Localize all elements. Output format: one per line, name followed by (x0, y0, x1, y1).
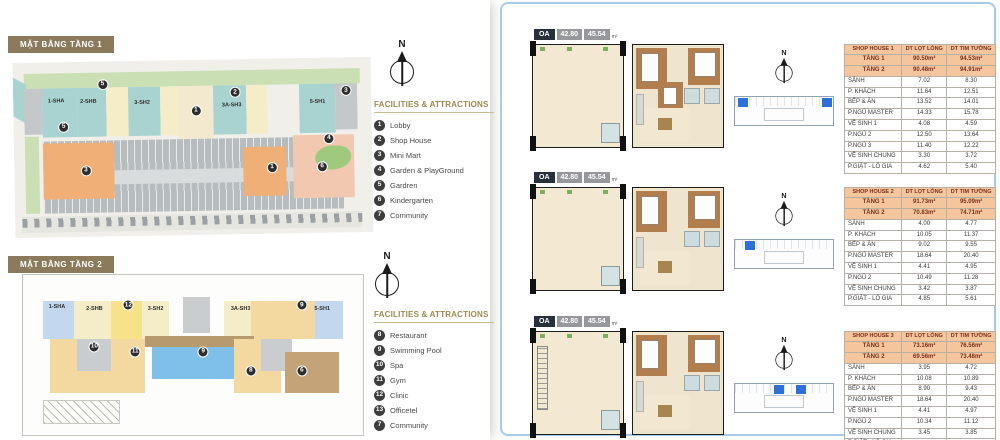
table-cell: 95.09m² (947, 198, 996, 209)
legend-list: 1Lobby2Shop House3Mini Mart4Garden & Pla… (374, 120, 494, 221)
legend-item-label: Community (390, 211, 428, 220)
table-header-cell: DT LỌT LÒNG (902, 332, 947, 342)
table-cell: 76.56m² (947, 342, 996, 353)
table-cell: 20.40 (947, 396, 996, 407)
table-cell: P.NGỦ MASTER (845, 396, 902, 407)
table-row: VỆ SINH CHUNG3.453.85 (845, 428, 996, 439)
area-value-1: 42.80 (557, 29, 583, 40)
table-cell: 18.64 (902, 252, 947, 263)
north-compass: N (370, 252, 404, 296)
bed (694, 195, 716, 219)
area-badge: OA 42.80 45.54 m² (534, 316, 990, 327)
legend-item: 2Shop House (374, 135, 494, 146)
area-table: SHOP HOUSE 3 DT LỌT LÒNG DT TIM TƯỜNG TẦ… (844, 331, 996, 440)
table-cell: P. KHÁCH (845, 374, 902, 385)
plan-marker: 9 (296, 300, 307, 311)
table-row: TẦNG 270.83m²74.71m² (845, 208, 996, 219)
location-keyplan (734, 96, 834, 126)
table-cell: P.NGỦ 2 (845, 273, 902, 284)
keyplan-highlight (738, 98, 748, 107)
table-cell: 94.91m² (947, 65, 996, 76)
floorplan-brochure: MẶT BẰNG TẦNG 1 5231531461-SHA2-SHB3-SH2… (0, 0, 1000, 440)
north-compass: N (772, 337, 796, 369)
furnished-floor-plan (632, 187, 724, 291)
table-header-cell: DT TIM TƯỜNG (947, 332, 996, 342)
legend-title: FACILITIES & ATTRACTIONS (374, 100, 494, 113)
table-cell: 3.45 (902, 428, 947, 439)
legend-item-label: Shop House (390, 136, 431, 145)
table-row: P. KHÁCH10.0511.37 (845, 230, 996, 241)
unit-code-badge: OA (534, 316, 555, 327)
table-cell: P.NGỦ 3 (845, 141, 902, 152)
table-cell: 8.90 (902, 385, 947, 396)
table-cell: 94.53m² (947, 55, 996, 66)
legend-item-number: 10 (374, 360, 385, 371)
bathroom (601, 410, 621, 430)
table-header-cell: SHOP HOUSE 3 (845, 332, 902, 342)
shophouse-block (77, 88, 106, 137)
wall-segment (530, 184, 536, 199)
legend-item-number: 7 (374, 210, 385, 221)
bathroom (704, 375, 720, 391)
table-cell: BẾP & ĂN (845, 241, 902, 252)
legend-item: 5Gardren (374, 180, 494, 191)
bathroom (601, 123, 621, 143)
legend-title: FACILITIES & ATTRACTIONS (374, 310, 494, 323)
area-table: SHOP HOUSE 2 DT LỌT LÒNG DT TIM TƯỜNG TẦ… (844, 187, 996, 306)
area-value-2: 45.54 (584, 316, 610, 327)
kitchen (636, 94, 644, 125)
table-row: P.NGỦ MASTER14.3315.78 (845, 109, 996, 120)
plant (567, 47, 572, 51)
table-cell: 10.34 (902, 417, 947, 428)
legend-item-label: Mini Mart (390, 151, 421, 160)
wall-segment (620, 423, 626, 438)
legend-item-label: Garden & PlayGround (390, 166, 464, 175)
table-cell: 73.48m² (947, 352, 996, 363)
wall-segment (620, 136, 626, 151)
kindergarten-block (285, 352, 339, 394)
table-cell: TẦNG 2 (845, 208, 902, 219)
furnished-floor-plan (632, 331, 724, 435)
table-cell: 10.05 (902, 230, 947, 241)
table-header-cell: SHOP HOUSE 2 (845, 188, 902, 198)
table-row: P. KHÁCH10.0810.89 (845, 374, 996, 385)
legend-item-number: 1 (374, 120, 385, 131)
table (658, 261, 672, 272)
facilities-legend-floor2: FACILITIES & ATTRACTIONS 8Restaurant9Swi… (374, 310, 494, 435)
table-cell: 18.64 (902, 396, 947, 407)
road (22, 211, 362, 233)
table-cell: 91.73m² (902, 198, 947, 209)
legend-item-number: 6 (374, 195, 385, 206)
table-row: TẦNG 269.56m²73.48m² (845, 352, 996, 363)
area-value-2: 45.54 (584, 172, 610, 183)
table-cell: TẦNG 1 (845, 198, 902, 209)
table-row: P.NGỦ MASTER18.6420.40 (845, 396, 996, 407)
legend-item-number: 8 (374, 330, 385, 341)
bed (663, 87, 677, 105)
openspace-floor-plan (532, 44, 624, 148)
table-cell: VỆ SINH CHUNG (845, 428, 902, 439)
plant (567, 334, 572, 338)
core-block (183, 297, 210, 332)
table-header-row: SHOP HOUSE 1 DT LỌT LÒNG DT TIM TƯỜNG (845, 45, 996, 55)
table-cell: 9.55 (947, 241, 996, 252)
wall-segment (530, 423, 536, 438)
plant (567, 190, 572, 194)
kitchen (636, 381, 644, 412)
table-row: TẦNG 191.73m²95.09m² (845, 198, 996, 209)
shophouse-plan-row: OA 42.80 45.54 m² (532, 172, 990, 306)
legend-item: 1Lobby (374, 120, 494, 131)
unit-code-label: 3-SH2 (134, 100, 150, 106)
table-header-cell: SHOP HOUSE 1 (845, 45, 902, 55)
table-cell: 4.41 (902, 262, 947, 273)
table-row: BẾP & ĂN9.029.55 (845, 241, 996, 252)
plant (540, 334, 545, 338)
table-cell: 13.64 (947, 130, 996, 141)
legend-item-number: 4 (374, 165, 385, 176)
legend-item-label: Lobby (390, 121, 410, 130)
unit-code-badge: OA (534, 172, 555, 183)
table-row: SẢNH7.028.30 (845, 76, 996, 87)
table-cell: 10.49 (902, 273, 947, 284)
table-cell: 3.30 (902, 152, 947, 163)
compass-ring-icon (775, 351, 792, 368)
compass-ring-icon (390, 60, 414, 84)
table-cell: P.NGỦ 2 (845, 417, 902, 428)
bed (694, 52, 716, 76)
table-cell: SẢNH (845, 76, 902, 87)
table-cell: TẦNG 2 (845, 65, 902, 76)
legend-item: 3Mini Mart (374, 150, 494, 161)
shophouse-plans-panel: OA 42.80 45.54 m² (500, 2, 996, 436)
table-cell: 4.08 (902, 119, 947, 130)
table-cell: 74.71m² (947, 208, 996, 219)
table-cell: BẾP & ĂN (845, 98, 902, 109)
unit-code-label: 2-SHB (86, 306, 103, 312)
north-label: N (781, 193, 786, 200)
keyplan-highlight (774, 385, 784, 394)
facilities-legend-floor1: FACILITIES & ATTRACTIONS 1Lobby2Shop Hou… (374, 100, 494, 225)
table-cell: 14.33 (902, 109, 947, 120)
wall-segment (530, 41, 536, 56)
table-cell: 15.78 (947, 109, 996, 120)
bed (694, 339, 716, 363)
table-cell: 11.12 (947, 417, 996, 428)
unit-code-label: 1-SHA (48, 98, 65, 104)
table-cell: 90.48m² (902, 65, 947, 76)
floor2-title: MẶT BẰNG TẦNG 2 (8, 256, 114, 273)
compass-ring-icon (775, 207, 792, 224)
table-cell: 9.02 (902, 241, 947, 252)
unit-code-label: 3A-SH3 (222, 102, 242, 108)
building-core-outline (764, 251, 803, 264)
keyplan-column: N (732, 44, 836, 126)
table-cell: 11.64 (902, 87, 947, 98)
area-value-1: 42.80 (557, 172, 583, 183)
table-cell: 3.42 (902, 284, 947, 295)
legend-item-label: Restaurant (390, 331, 427, 340)
table-row: TẦNG 190.50m²94.53m² (845, 55, 996, 66)
bathroom (684, 88, 700, 104)
building-core-outline (764, 108, 803, 121)
table-row: SẢNH3.954.72 (845, 363, 996, 374)
north-label: N (781, 50, 786, 57)
area-badge: OA 42.80 45.54 m² (534, 29, 990, 40)
bed (641, 196, 659, 225)
furnished-floor-plan (632, 44, 724, 148)
area-table: SHOP HOUSE 1 DT LỌT LÒNG DT TIM TƯỜNG TẦ… (844, 44, 996, 174)
plan-marker: 9 (198, 346, 209, 357)
table-row: P.NGỦ 210.3411.12 (845, 417, 996, 428)
legend-item-label: Officetel (390, 406, 417, 415)
table-cell: TẦNG 1 (845, 55, 902, 66)
table-cell: 4.41 (902, 406, 947, 417)
table-cell: 12.50 (902, 130, 947, 141)
unit-code-label: 3A-SH3 (231, 306, 251, 312)
table-cell: P. KHÁCH (845, 87, 902, 98)
bed (641, 340, 659, 369)
building-block (160, 87, 179, 136)
table-cell: 3.72 (947, 152, 996, 163)
table-row: SẢNH4.004.77 (845, 219, 996, 230)
wall-segment (620, 41, 626, 56)
lobby-block (243, 146, 287, 196)
plan-marker: 12 (123, 300, 134, 311)
table-row: P.NGỦ 311.4012.22 (845, 141, 996, 152)
table-cell: 8.30 (947, 76, 996, 87)
table-cell: 4.77 (947, 219, 996, 230)
minimart-block (43, 142, 116, 199)
legend-item-label: Kindergarten (390, 196, 433, 205)
building-block (106, 87, 128, 136)
building-core-outline (764, 395, 803, 408)
kitchen (636, 237, 644, 268)
legend-item-number: 12 (374, 390, 385, 401)
table-row: TẦNG 173.16m²76.56m² (845, 342, 996, 353)
table-cell: 11.28 (947, 273, 996, 284)
legend-item: 4Garden & PlayGround (374, 165, 494, 176)
table-cell: 9.43 (947, 385, 996, 396)
keyplan-column: N (732, 187, 836, 269)
table-cell: VỆ SINH CHUNG (845, 152, 902, 163)
legend-item-label: Community (390, 421, 428, 430)
legend-item-label: Gym (390, 376, 406, 385)
table-cell: VỆ SINH 1 (845, 406, 902, 417)
legend-item-label: Clinic (390, 391, 408, 400)
plant (603, 47, 608, 51)
bathroom (704, 231, 720, 247)
bathroom (704, 88, 720, 104)
table-cell: TẦNG 2 (845, 352, 902, 363)
table-cell: 13.52 (902, 98, 947, 109)
legend-item-label: Swimming Pool (390, 346, 442, 355)
compass-ring-icon (775, 64, 792, 81)
table-cell: SẢNH (845, 219, 902, 230)
table-cell: 14.01 (947, 98, 996, 109)
legend-item-number: 13 (374, 405, 385, 416)
table-cell: P.NGỦ MASTER (845, 109, 902, 120)
table-cell: SẢNH (845, 363, 902, 374)
wall-segment (620, 328, 626, 343)
wall-segment (530, 136, 536, 151)
table-cell: 4.72 (947, 363, 996, 374)
table-row: BẾP & ĂN8.909.43 (845, 385, 996, 396)
bathroom (684, 375, 700, 391)
legend-item-number: 5 (374, 180, 385, 191)
table-cell: 69.56m² (902, 352, 947, 363)
unit-code-label: 2-SHB (80, 99, 97, 105)
plant (603, 190, 608, 194)
area-value-2: 45.54 (584, 29, 610, 40)
plant (603, 334, 608, 338)
table-cell: 73.16m² (902, 342, 947, 353)
table-cell: TẦNG 1 (845, 342, 902, 353)
keyplan-highlight (796, 385, 806, 394)
wall-segment (620, 279, 626, 294)
plan-marker: 11 (130, 346, 141, 357)
table-cell: 20.40 (947, 252, 996, 263)
wall-segment (530, 328, 536, 343)
location-keyplan (734, 383, 834, 413)
table (658, 118, 672, 129)
bathroom (684, 231, 700, 247)
unit-code-label: 3-SH2 (148, 306, 164, 312)
staircase (537, 346, 549, 409)
bed (641, 53, 659, 82)
north-label: N (398, 40, 405, 50)
plant (540, 190, 545, 194)
table-cell: 4.59 (947, 119, 996, 130)
table-row: VỆ SINH 14.414.97 (845, 406, 996, 417)
hatched-area (43, 400, 120, 424)
north-compass: N (385, 40, 419, 84)
legend-list: 8Restaurant9Swimming Pool10Spa11Gym12Cli… (374, 330, 494, 431)
legend-item: 6Kindergarten (374, 195, 494, 206)
wall-segment (620, 184, 626, 199)
table-header-cell: DT LỌT LÒNG (902, 188, 947, 198)
area-unit: m² (612, 177, 618, 183)
legend-item: 13Officetel (374, 405, 494, 416)
legend-item-number: 11 (374, 375, 385, 386)
legend-item-number: 7 (374, 420, 385, 431)
north-label: N (383, 252, 390, 262)
table-cell: 10.08 (902, 374, 947, 385)
table-cell: 90.50m² (902, 55, 947, 66)
table-cell: 4.95 (947, 262, 996, 273)
table-cell: VỆ SINH 1 (845, 119, 902, 130)
area-unit: m² (612, 321, 618, 327)
floor2-site-plan: 12910119861-SHA2-SHB3-SH23A-SH35-SH1 (22, 274, 364, 436)
legend-item: 8Restaurant (374, 330, 494, 341)
unit-block (251, 301, 288, 339)
table-header-row: SHOP HOUSE 2 DT LỌT LÒNG DT TIM TƯỜNG (845, 188, 996, 198)
openspace-floor-plan (532, 331, 624, 435)
legend-item-label: Spa (390, 361, 403, 370)
unit-code-label: 5-SH1 (310, 98, 326, 104)
table-cell: 12.51 (947, 87, 996, 98)
table-cell: P.NGỦ 2 (845, 130, 902, 141)
plan-marker: 6 (296, 366, 307, 377)
table-cell: 7.02 (902, 76, 947, 87)
keyplan-highlight (745, 241, 755, 250)
table-row: VỆ SINH 14.084.59 (845, 119, 996, 130)
shophouse-plan-row: OA 42.80 45.54 m² (532, 316, 990, 440)
legend-item: 7Community (374, 210, 494, 221)
table (658, 405, 672, 416)
wall-segment (530, 279, 536, 294)
table-cell: 12.22 (947, 141, 996, 152)
keyplan-highlight (822, 98, 832, 107)
table-row: P.NGỦ 210.4911.28 (845, 273, 996, 284)
legend-item-label: Gardren (390, 181, 418, 190)
legend-item: 10Spa (374, 360, 494, 371)
unit-code-label: 1-SHA (49, 304, 66, 310)
table-row: P. KHÁCH11.6412.51 (845, 87, 996, 98)
table-cell: VỆ SINH CHUNG (845, 284, 902, 295)
table-header-cell: DT TIM TƯỜNG (947, 188, 996, 198)
table-cell: 11.40 (902, 141, 947, 152)
plan-marker: 10 (89, 342, 100, 353)
table-header-cell: DT TIM TƯỜNG (947, 45, 996, 55)
building-block (24, 89, 43, 135)
table-row: P.NGỦ MASTER18.6420.40 (845, 252, 996, 263)
north-compass: N (772, 50, 796, 82)
keyplan-column: N (732, 331, 836, 413)
table-header-row: SHOP HOUSE 3 DT LỌT LÒNG DT TIM TƯỜNG (845, 332, 996, 342)
legend-item: 11Gym (374, 375, 494, 386)
shophouse-block (299, 84, 336, 134)
legend-item-number: 2 (374, 135, 385, 146)
table-cell: P.GIẶT - LÔ GIA (845, 295, 902, 306)
table-row: BẾP & ĂN13.5214.01 (845, 98, 996, 109)
plan-marker: 8 (245, 366, 256, 377)
unit-code-badge: OA (534, 29, 555, 40)
area-unit: m² (612, 34, 618, 40)
building-block (246, 85, 268, 134)
legend-item: 9Swimming Pool (374, 345, 494, 356)
floor1-title: MẶT BẰNG TẦNG 1 (8, 36, 114, 53)
area-value-1: 42.80 (557, 316, 583, 327)
openspace-floor-plan (532, 187, 624, 291)
table-cell: 11.37 (947, 230, 996, 241)
table-row: TẦNG 290.48m²94.91m² (845, 65, 996, 76)
table-cell: 4.00 (902, 219, 947, 230)
north-label: N (781, 337, 786, 344)
site-plans-panel: MẶT BẰNG TẦNG 1 5231531461-SHA2-SHB3-SH2… (0, 0, 490, 440)
table-cell: VỆ SINH 1 (845, 262, 902, 273)
shophouse-plan-row: OA 42.80 45.54 m² (532, 29, 990, 174)
table-row: P.NGỦ 212.5013.64 (845, 130, 996, 141)
table-cell: P.NGỦ MASTER (845, 252, 902, 263)
table-row: VỆ SINH CHUNG3.303.72 (845, 152, 996, 163)
location-keyplan (734, 239, 834, 269)
table-cell: 3.87 (947, 284, 996, 295)
landscaping-strip (25, 136, 41, 213)
compass-ring-icon (375, 272, 399, 296)
table-cell: 3.95 (902, 363, 947, 374)
north-compass: N (772, 193, 796, 225)
table-row: P.GIẶT - LÔ GIA4.855.61 (845, 295, 996, 306)
table-row: VỆ SINH 14.414.95 (845, 262, 996, 273)
shophouse-block (127, 87, 160, 137)
table-cell: 70.83m² (902, 208, 947, 219)
area-badge: OA 42.80 45.54 m² (534, 172, 990, 183)
table-cell: BẾP & ĂN (845, 385, 902, 396)
table-cell: 4.85 (902, 295, 947, 306)
